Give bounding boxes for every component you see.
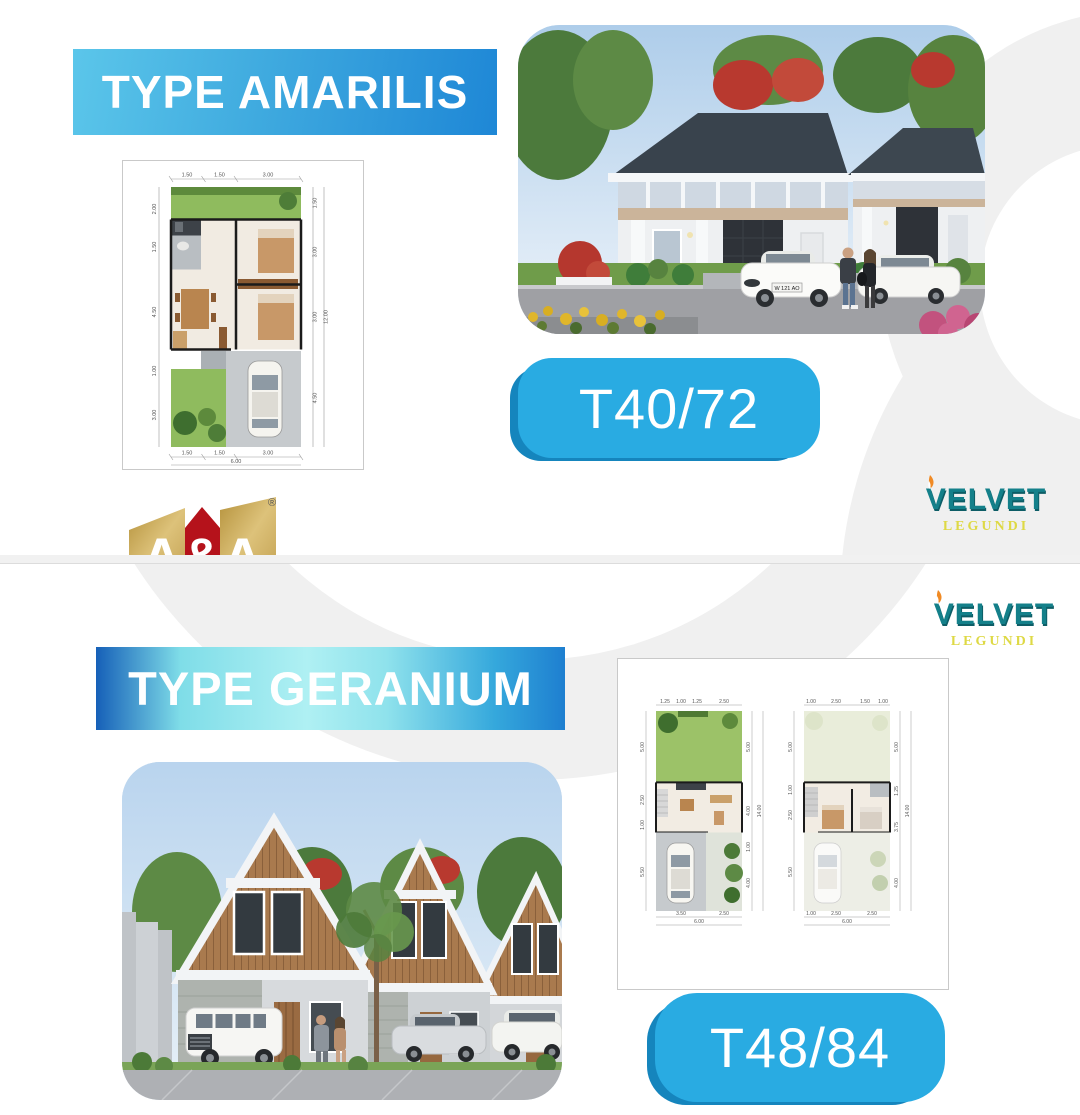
amarilis-floorplan-svg: 1.50 1.50 3.00 1.50 1.50 3.00 6.00 1.50 … <box>123 161 361 467</box>
aa-realestate-logo: A&A REAL ESTATE AGENT ® <box>127 496 278 555</box>
svg-text:3.00: 3.00 <box>263 173 274 179</box>
svg-text:1.25: 1.25 <box>692 699 702 705</box>
upper-floor-plan: 1.00 2.50 1.50 1.00 1.00 2.50 2.50 6.00 … <box>788 699 911 925</box>
amarilis-house-photo: W 121 AO <box>518 25 985 334</box>
svg-text:4.00: 4.00 <box>746 806 752 816</box>
svg-text:6.00: 6.00 <box>842 919 852 925</box>
velvet-flame-icon <box>930 590 946 608</box>
svg-text:2.50: 2.50 <box>719 699 729 705</box>
geranium-type-label: T48/84 <box>710 1015 890 1080</box>
section-geranium: VELVET LEGUNDI TYPE GERANIUM <box>0 564 1080 1115</box>
svg-text:5.00: 5.00 <box>788 742 794 752</box>
svg-text:2.50: 2.50 <box>867 911 877 917</box>
license-plate: W 121 AO <box>774 286 800 292</box>
amarilis-type-label: T40/72 <box>579 376 759 441</box>
amarilis-floorplan-sheet: 1.50 1.50 3.00 1.50 1.50 3.00 6.00 1.50 … <box>122 160 364 470</box>
svg-text:4.00: 4.00 <box>746 878 752 888</box>
svg-text:5.00: 5.00 <box>640 742 646 752</box>
svg-text:4.00: 4.00 <box>894 878 900 888</box>
svg-text:1.50: 1.50 <box>860 699 870 705</box>
svg-text:12.00: 12.00 <box>324 310 330 324</box>
geranium-floorplan-svg: 1.25 1.00 1.25 2.50 3.50 2.50 6.00 5.00 … <box>618 659 946 987</box>
velvet-wordmark: VELVET <box>926 483 1046 516</box>
svg-text:2.50: 2.50 <box>831 911 841 917</box>
svg-text:3.00: 3.00 <box>313 312 319 323</box>
svg-text:1.50: 1.50 <box>313 198 319 209</box>
brochure-page: TYPE AMARILIS <box>0 0 1080 1115</box>
velvet-flame-icon <box>922 475 938 493</box>
svg-text:5.00: 5.00 <box>746 742 752 752</box>
velvet-logo-bottom: VELVET LEGUNDI <box>928 598 1060 650</box>
svg-text:4.50: 4.50 <box>152 307 158 318</box>
svg-text:1.00: 1.00 <box>152 366 158 377</box>
aa-monogram: A&A <box>141 526 262 555</box>
svg-text:2.50: 2.50 <box>719 911 729 917</box>
registered-mark: ® <box>268 497 276 509</box>
svg-text:1.00: 1.00 <box>676 699 686 705</box>
svg-text:1.00: 1.00 <box>806 911 816 917</box>
boundary-fence <box>122 912 172 1067</box>
svg-text:1.50: 1.50 <box>214 173 225 179</box>
geranium-floorplan-sheet: 1.25 1.00 1.25 2.50 3.50 2.50 6.00 5.00 … <box>617 658 949 990</box>
svg-text:6.00: 6.00 <box>694 919 704 925</box>
svg-text:6.00: 6.00 <box>231 459 242 465</box>
svg-text:2.00: 2.00 <box>152 204 158 215</box>
amarilis-type-button[interactable]: T40/72 <box>518 358 820 458</box>
svg-text:1.50: 1.50 <box>152 242 158 253</box>
velvet-wordmark: VELVET <box>934 598 1054 631</box>
svg-text:1.50: 1.50 <box>182 451 193 457</box>
svg-text:5.50: 5.50 <box>640 867 646 877</box>
svg-text:1.00: 1.00 <box>878 699 888 705</box>
svg-text:3.00: 3.00 <box>263 451 274 457</box>
svg-text:3.50: 3.50 <box>676 911 686 917</box>
svg-text:14.00: 14.00 <box>905 805 911 818</box>
geranium-title: TYPE GERANIUM <box>128 661 533 716</box>
velvet-subtitle: LEGUNDI <box>928 634 1060 650</box>
svg-text:2.50: 2.50 <box>640 795 646 805</box>
velvet-logo-top: VELVET LEGUNDI <box>920 483 1052 535</box>
svg-text:1.25: 1.25 <box>894 786 900 796</box>
amarilis-title-banner: TYPE AMARILIS <box>73 49 497 135</box>
svg-text:1.00: 1.00 <box>746 842 752 852</box>
geranium-title-banner: TYPE GERANIUM <box>96 647 565 730</box>
svg-text:4.50: 4.50 <box>313 393 319 404</box>
ground-floor-plan: 1.25 1.00 1.25 2.50 3.50 2.50 6.00 5.00 … <box>640 699 763 925</box>
svg-text:2.50: 2.50 <box>788 810 794 820</box>
svg-text:1.00: 1.00 <box>806 699 816 705</box>
svg-text:5.00: 5.00 <box>894 742 900 752</box>
geranium-house-photo <box>122 762 562 1100</box>
amarilis-title: TYPE AMARILIS <box>102 65 469 119</box>
geranium-type-button[interactable]: T48/84 <box>655 993 945 1102</box>
svg-text:3.75: 3.75 <box>894 822 900 832</box>
svg-text:1.25: 1.25 <box>660 699 670 705</box>
svg-text:3.00: 3.00 <box>313 247 319 258</box>
svg-text:1.00: 1.00 <box>788 785 794 795</box>
svg-text:2.50: 2.50 <box>831 699 841 705</box>
svg-text:14.00: 14.00 <box>757 805 763 818</box>
svg-text:1.50: 1.50 <box>214 451 225 457</box>
velvet-subtitle: LEGUNDI <box>920 519 1052 535</box>
section-divider <box>0 555 1080 564</box>
svg-text:3.00: 3.00 <box>152 410 158 421</box>
svg-text:5.50: 5.50 <box>788 867 794 877</box>
svg-text:1.50: 1.50 <box>182 173 193 179</box>
section-amarilis: TYPE AMARILIS <box>0 0 1080 555</box>
plan-car <box>248 361 282 437</box>
svg-text:1.00: 1.00 <box>640 820 646 830</box>
